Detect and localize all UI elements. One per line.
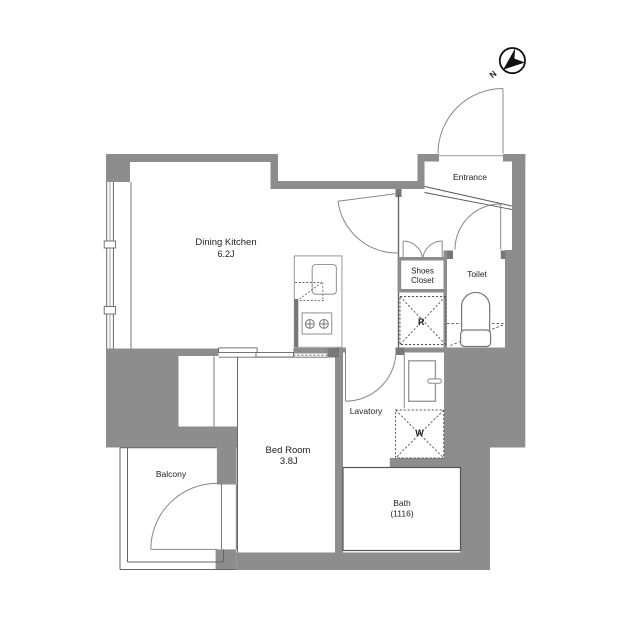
svg-text:Toilet: Toilet [467, 269, 487, 279]
svg-text:R: R [418, 317, 425, 327]
svg-text:Entrance: Entrance [453, 172, 487, 182]
svg-text:Dining Kitchen: Dining Kitchen [195, 237, 256, 248]
svg-text:Lavatory: Lavatory [350, 406, 383, 416]
svg-text:Bed Room: Bed Room [266, 445, 311, 456]
svg-text:6.2J: 6.2J [217, 249, 234, 259]
svg-text:(1116): (1116) [390, 509, 413, 519]
svg-text:3.8J: 3.8J [280, 456, 298, 467]
svg-text:W: W [415, 428, 424, 438]
svg-text:Closet: Closet [411, 276, 434, 285]
svg-text:Shoes: Shoes [411, 267, 434, 276]
svg-text:Bath: Bath [393, 498, 411, 508]
svg-text:Balcony: Balcony [156, 469, 187, 479]
